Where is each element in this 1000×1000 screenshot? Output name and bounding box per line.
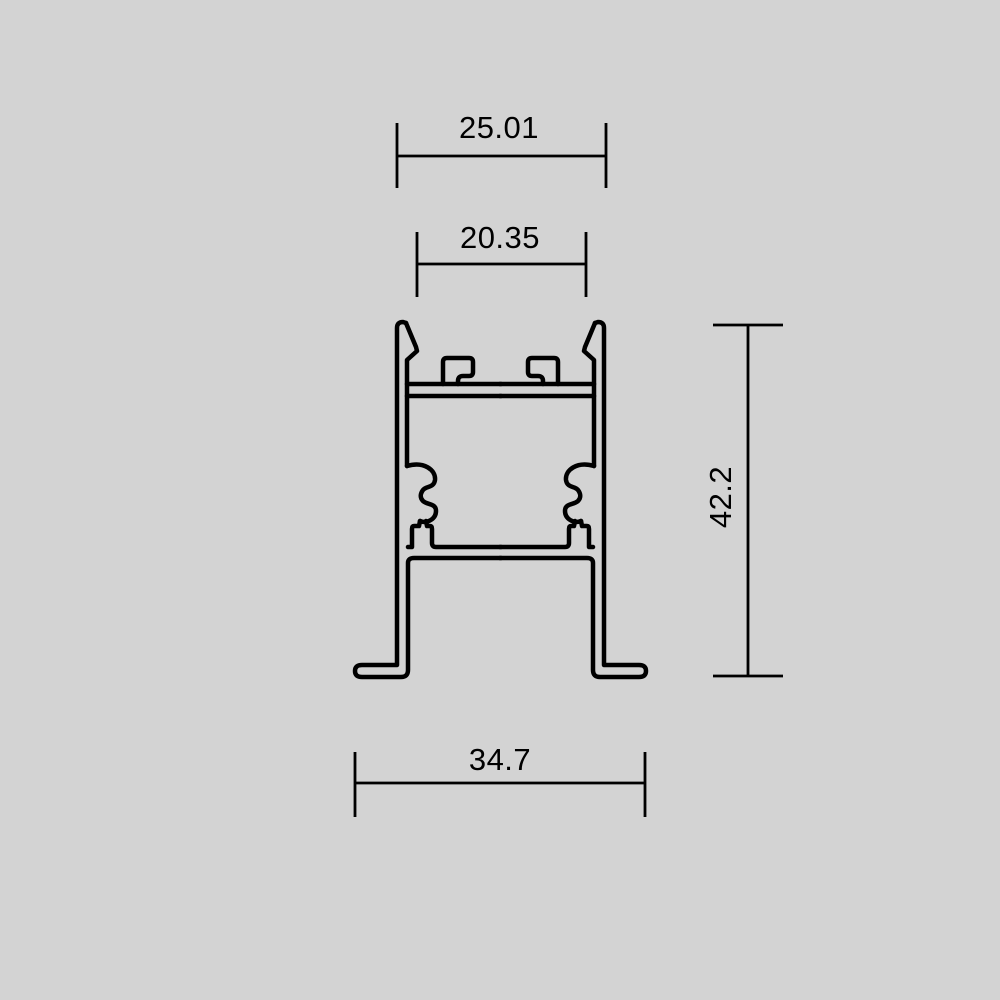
dimension-label-top-opening-width: 20.35	[460, 220, 540, 255]
profile-cross-section	[355, 322, 646, 677]
profile-outer-contour-path	[355, 322, 501, 677]
dimension-label-base-width: 34.7	[469, 742, 531, 777]
profile-tab-left-edge-path	[408, 521, 420, 547]
profile-right-half-mirror	[500, 322, 646, 677]
dimension-label-top-outer-width: 25.01	[459, 110, 539, 145]
dimension-label-overall-height: 42.2	[703, 466, 738, 528]
technical-drawing-canvas: 25.01 20.35 42.2 34.7	[0, 0, 1000, 1000]
profile-left-half	[355, 322, 501, 677]
profile-screw-clip-path	[407, 465, 436, 522]
profile-tab-right-edge-path	[426, 521, 501, 547]
profile-mounting-hook-path	[443, 358, 473, 384]
